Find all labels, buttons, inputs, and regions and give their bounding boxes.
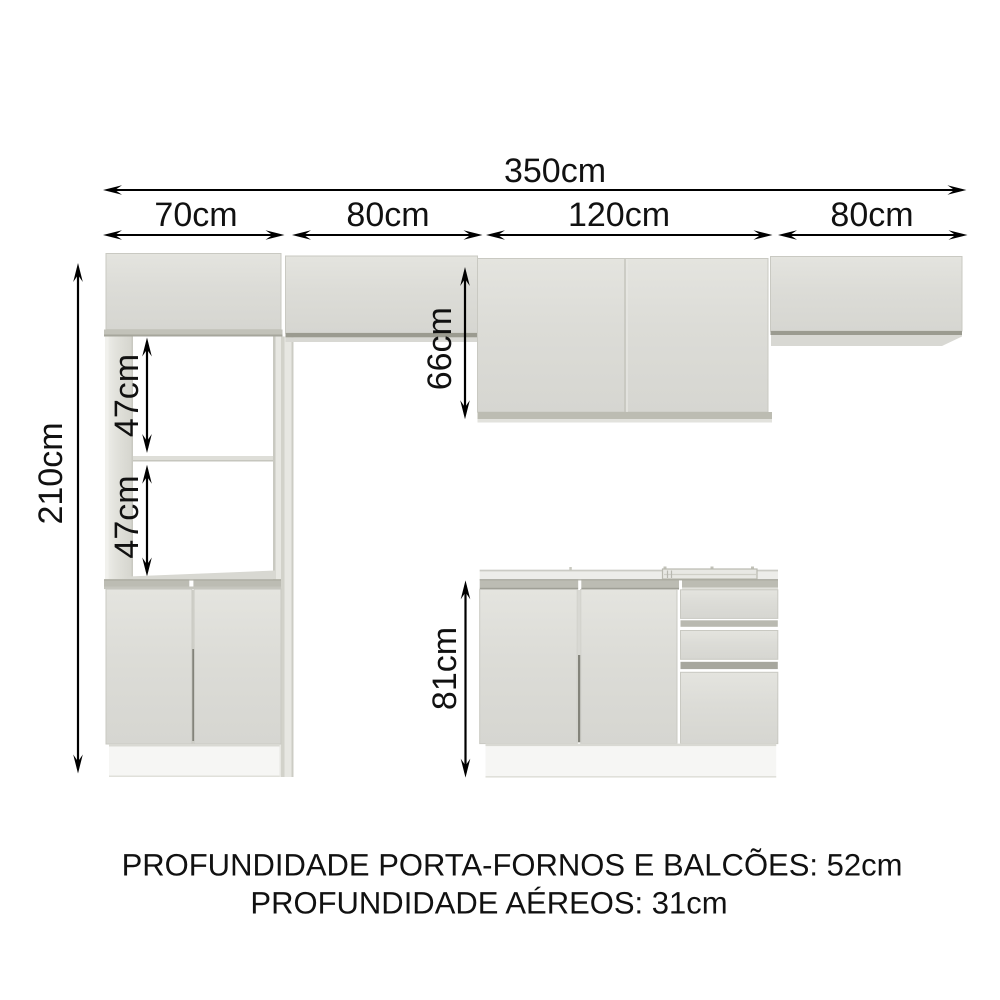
svg-text:350cm: 350cm — [504, 152, 606, 190]
svg-text:66cm: 66cm — [421, 307, 459, 390]
svg-text:47cm: 47cm — [108, 475, 146, 558]
svg-text:80cm: 80cm — [346, 196, 429, 234]
svg-text:47cm: 47cm — [108, 354, 146, 437]
svg-text:PROFUNDIDADE AÉREOS: 31cm: PROFUNDIDADE AÉREOS: 31cm — [250, 886, 727, 921]
svg-text:PROFUNDIDADE PORTA-FORNOS E BA: PROFUNDIDADE PORTA-FORNOS E BALCÕES: 52c… — [122, 848, 903, 883]
svg-text:210cm: 210cm — [32, 422, 70, 524]
svg-text:80cm: 80cm — [830, 196, 913, 234]
svg-text:70cm: 70cm — [154, 196, 237, 234]
svg-text:120cm: 120cm — [568, 196, 670, 234]
svg-text:81cm: 81cm — [426, 627, 464, 710]
